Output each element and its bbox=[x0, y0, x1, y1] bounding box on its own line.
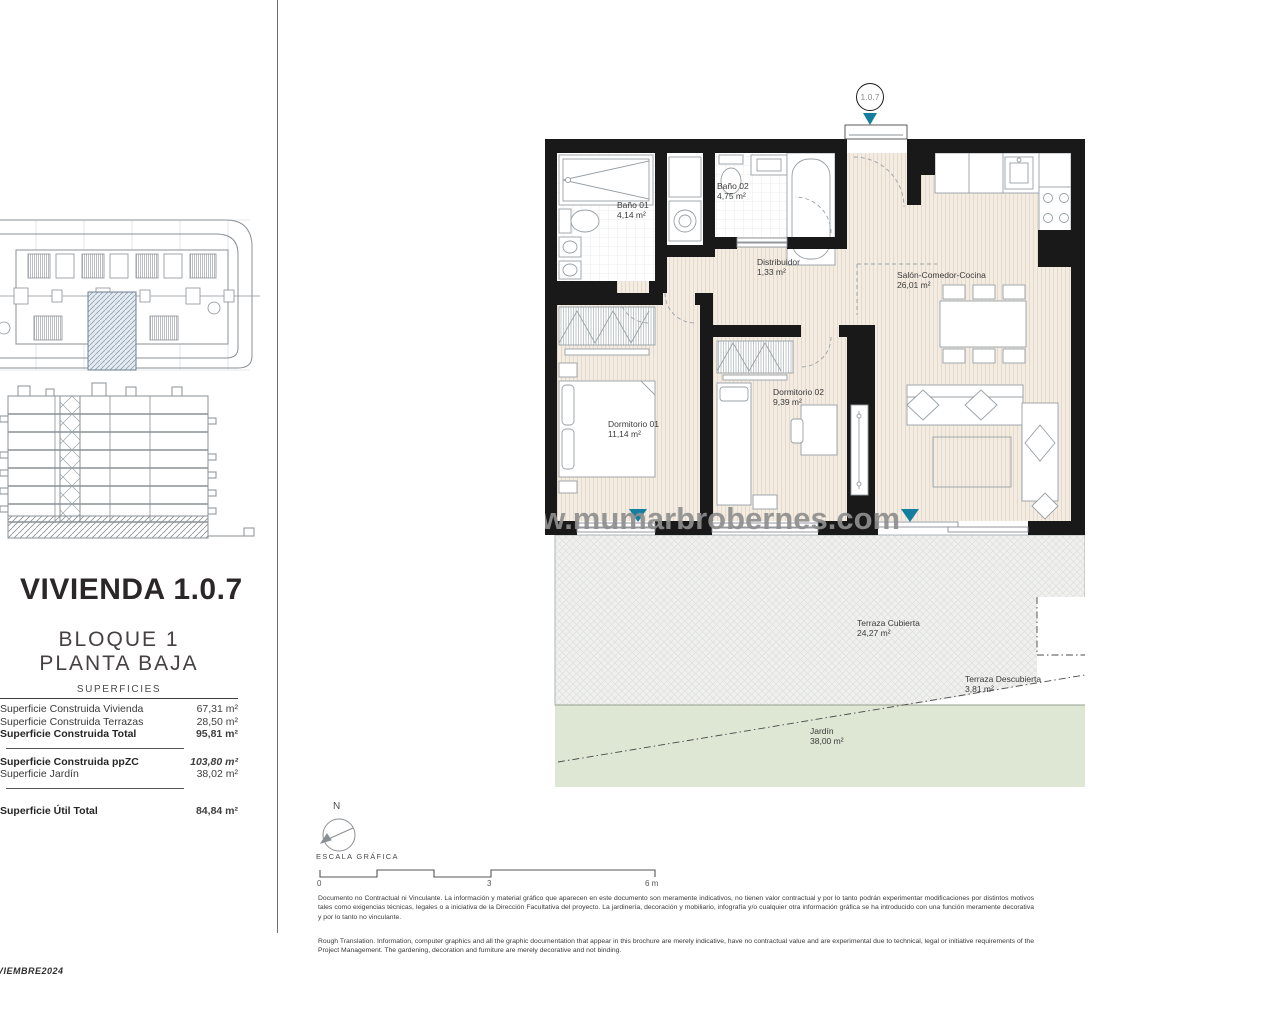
surfaces-rule bbox=[0, 698, 238, 699]
scale-tick-3: 3 bbox=[487, 879, 491, 888]
highlighted-unit bbox=[88, 292, 136, 370]
site-plan-drawing bbox=[0, 210, 266, 382]
room-label-distribuidor: Distribuidor1,33 m² bbox=[757, 258, 800, 277]
disclaimer-spanish: Documento no Contractual ni Vinculante. … bbox=[318, 894, 1034, 922]
table-row: Superficie Construida ppZC 103,80 m² bbox=[0, 756, 238, 769]
room-label-jardin: Jardín38,00 m² bbox=[810, 727, 844, 746]
unit-number-badge: 1.0.7 bbox=[856, 83, 884, 111]
table-divider bbox=[6, 788, 184, 789]
column-divider bbox=[277, 0, 278, 933]
floor-label: PLANTA BAJA bbox=[0, 652, 238, 676]
scale-tick-6m: 6 m bbox=[645, 879, 658, 888]
table-row: Superficie Útil Total 84,84 m² bbox=[0, 805, 238, 818]
table-divider bbox=[6, 748, 184, 749]
disclaimer-english: Rough Translation. Information, computer… bbox=[318, 937, 1034, 956]
building-section-drawing bbox=[0, 378, 266, 570]
date-stamp: VIEMBRE2024 bbox=[0, 966, 64, 976]
scale-bar bbox=[320, 870, 655, 877]
table-row: Superficie Jardín 38,02 m² bbox=[0, 768, 238, 781]
floor-plan: 1.0.7 Baño 014,14 m² Baño 024,75 m² Dist… bbox=[545, 75, 1085, 787]
room-label-terraza-cubierta: Terraza Cubierta24,27 m² bbox=[857, 619, 920, 638]
surfaces-table-title: SUPERFICIES bbox=[0, 684, 238, 695]
north-and-scalebar-svg bbox=[310, 795, 682, 895]
room-label-dormitorio02: Dormitorio 029,39 m² bbox=[773, 388, 824, 407]
table-row: Superficie Construida Vivienda 67,31 m² bbox=[0, 703, 238, 716]
surfaces-table: Superficie Construida Vivienda 67,31 m² … bbox=[0, 703, 238, 817]
north-label: N bbox=[333, 801, 340, 812]
table-row: Superficie Construida Total 95,81 m² bbox=[0, 728, 238, 741]
room-label-terraza-descubierta: Terraza Descubierta3,81 m² bbox=[965, 675, 1041, 694]
page-title: VIVIENDA 1.0.7 bbox=[20, 573, 250, 607]
room-label-bano02: Baño 024,75 m² bbox=[717, 182, 749, 201]
room-label-bano01: Baño 014,14 m² bbox=[617, 201, 649, 220]
scale-block: N ESCALA GRÁFICA 0 3 6 m bbox=[310, 795, 682, 895]
building-section-svg bbox=[0, 378, 266, 570]
table-row: Superficie Construida Terrazas 28,50 m² bbox=[0, 716, 238, 729]
watermark: www.mumarbrobernes.com bbox=[545, 501, 900, 537]
scale-caption: ESCALA GRÁFICA bbox=[316, 852, 399, 861]
block-floor-subtitle: BLOQUE 1 PLANTA BAJA bbox=[0, 628, 238, 676]
room-label-salon: Salón-Comedor-Cocina26,01 m² bbox=[897, 271, 986, 290]
highlighted-ground-floor bbox=[8, 516, 208, 538]
page: VIVIENDA 1.0.7 BLOQUE 1 PLANTA BAJA SUPE… bbox=[0, 0, 1280, 1024]
room-label-dormitorio01: Dormitorio 0111,14 m² bbox=[608, 420, 659, 439]
scale-tick-0: 0 bbox=[317, 879, 321, 888]
block-label: BLOQUE 1 bbox=[0, 628, 238, 652]
site-plan-svg bbox=[0, 210, 266, 382]
